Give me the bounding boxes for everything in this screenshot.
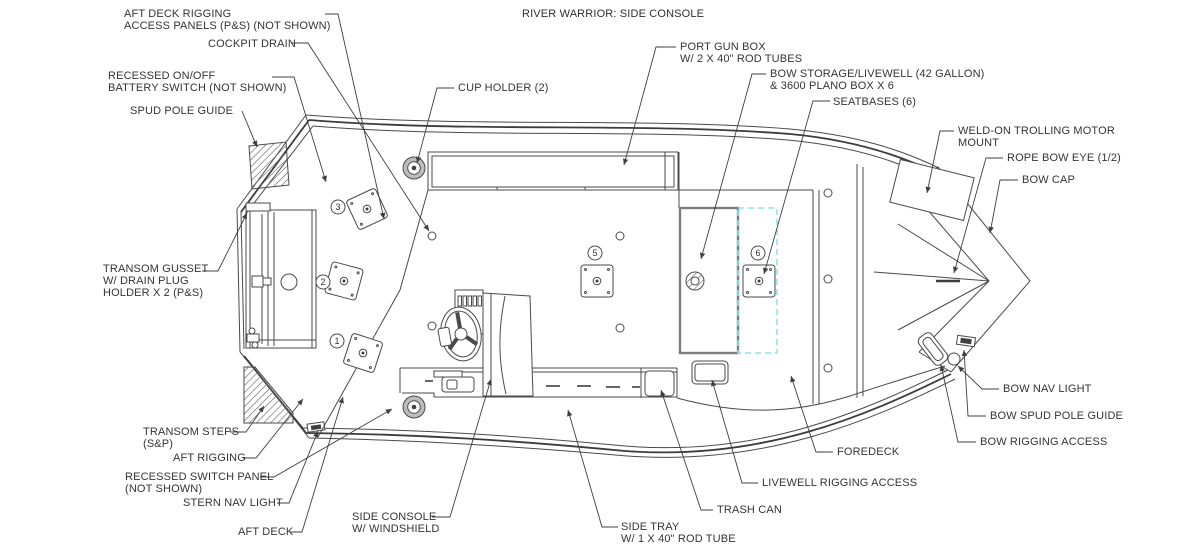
port-gun-box <box>428 152 679 208</box>
label-recessed-battery-switch: RECESSED ON/OFF BATTERY SWITCH (NOT SHOW… <box>108 70 286 94</box>
cup-holder-fwd <box>403 396 425 418</box>
trash-can <box>641 368 674 398</box>
label-aft-rigging: AFT RIGGING <box>173 452 246 464</box>
label-bow-cap: BOW CAP <box>1022 174 1075 186</box>
side-console <box>434 290 533 396</box>
diagram-title: RIVER WARRIOR: SIDE CONSOLE <box>522 8 704 20</box>
livewell-rigging-access-hatch <box>692 361 728 384</box>
leader-transom-gusset <box>202 213 247 271</box>
seat-number-1: 1 <box>334 336 339 346</box>
seat-number-6: 6 <box>755 248 760 258</box>
label-aft-deck-rigging-access: AFT DECK RIGGING ACCESS PANELS (P&S) (NO… <box>124 8 331 32</box>
leader-seatbases <box>764 101 830 274</box>
transom-drain <box>281 274 297 290</box>
bow-spud-pole-guide-fitting <box>956 335 975 346</box>
label-livewell-rigging-access: LIVEWELL RIGGING ACCESS <box>762 477 917 489</box>
leader-spud-pole-guide <box>242 111 257 147</box>
leader-aft-deck <box>290 397 343 532</box>
label-cockpit-drain: COCKPIT DRAIN <box>208 38 296 50</box>
label-weld-on-trolling-motor: WELD-ON TROLLING MOTOR MOUNT <box>958 125 1115 149</box>
label-side-tray: SIDE TRAY W/ 1 X 40" ROD TUBE <box>621 521 736 545</box>
label-cup-holder: CUP HOLDER (2) <box>458 82 549 94</box>
stern-nav-light-fitting <box>307 422 325 432</box>
spud-pole-guide-pad <box>249 142 289 189</box>
leader-bow-cap <box>990 180 1018 233</box>
leader-side-console <box>432 379 491 517</box>
label-foredeck: FOREDECK <box>837 446 899 458</box>
seat-number-3: 3 <box>335 202 340 212</box>
label-spud-pole-guide: SPUD POLE GUIDE <box>130 105 233 117</box>
leader-bow-spud-guide <box>964 350 986 416</box>
label-rope-bow-eye: ROPE BOW EYE (1/2) <box>1007 152 1121 164</box>
bow-nav-light-fitting <box>948 353 960 365</box>
transom-step-pad <box>244 367 293 423</box>
throttle <box>434 371 474 392</box>
leader-bow-nav-light <box>958 366 999 389</box>
label-transom-gusset: TRANSOM GUSSET W/ DRAIN PLUG HOLDER X 2 … <box>103 263 208 299</box>
label-aft-deck: AFT DECK <box>238 526 293 538</box>
seat-number-5: 5 <box>592 248 597 258</box>
seat-number-2: 2 <box>320 277 325 287</box>
boat-diagram-page: 1 2 3 5 6 RIVER WARRIOR: SIDE CONSOLE AF… <box>0 0 1200 553</box>
leader-stern-nav-light <box>277 431 318 503</box>
leader-livewell-rigging <box>712 380 758 483</box>
cup-holder-aft <box>403 157 425 179</box>
label-stern-nav-light: STERN NAV LIGHT <box>183 497 283 509</box>
label-trash-can: TRASH CAN <box>717 504 782 516</box>
leader-port-gun-box <box>624 47 676 165</box>
label-recessed-switch-panel: RECESSED SWITCH PANEL (NOT SHOWN) <box>125 471 273 495</box>
label-bow-storage-livewell: BOW STORAGE/LIVEWELL (42 GALLON) & 3600 … <box>770 68 984 92</box>
label-side-console: SIDE CONSOLE W/ WINDSHIELD <box>352 511 440 535</box>
label-seatbases: SEATBASES (6) <box>833 96 916 108</box>
label-bow-nav-light: BOW NAV LIGHT <box>1003 383 1092 395</box>
drain-plug-holder <box>252 276 263 287</box>
leader-side-tray <box>568 410 618 527</box>
label-port-gun-box: PORT GUN BOX W/ 2 X 40" ROD TUBES <box>680 41 802 65</box>
transom-assembly <box>246 203 316 348</box>
label-bow-spud-pole-guide: BOW SPUD POLE GUIDE <box>990 410 1123 422</box>
label-transom-steps: TRANSOM STEPS (S&P) <box>143 426 239 450</box>
label-bow-rigging-access: BOW RIGGING ACCESS <box>980 436 1107 448</box>
